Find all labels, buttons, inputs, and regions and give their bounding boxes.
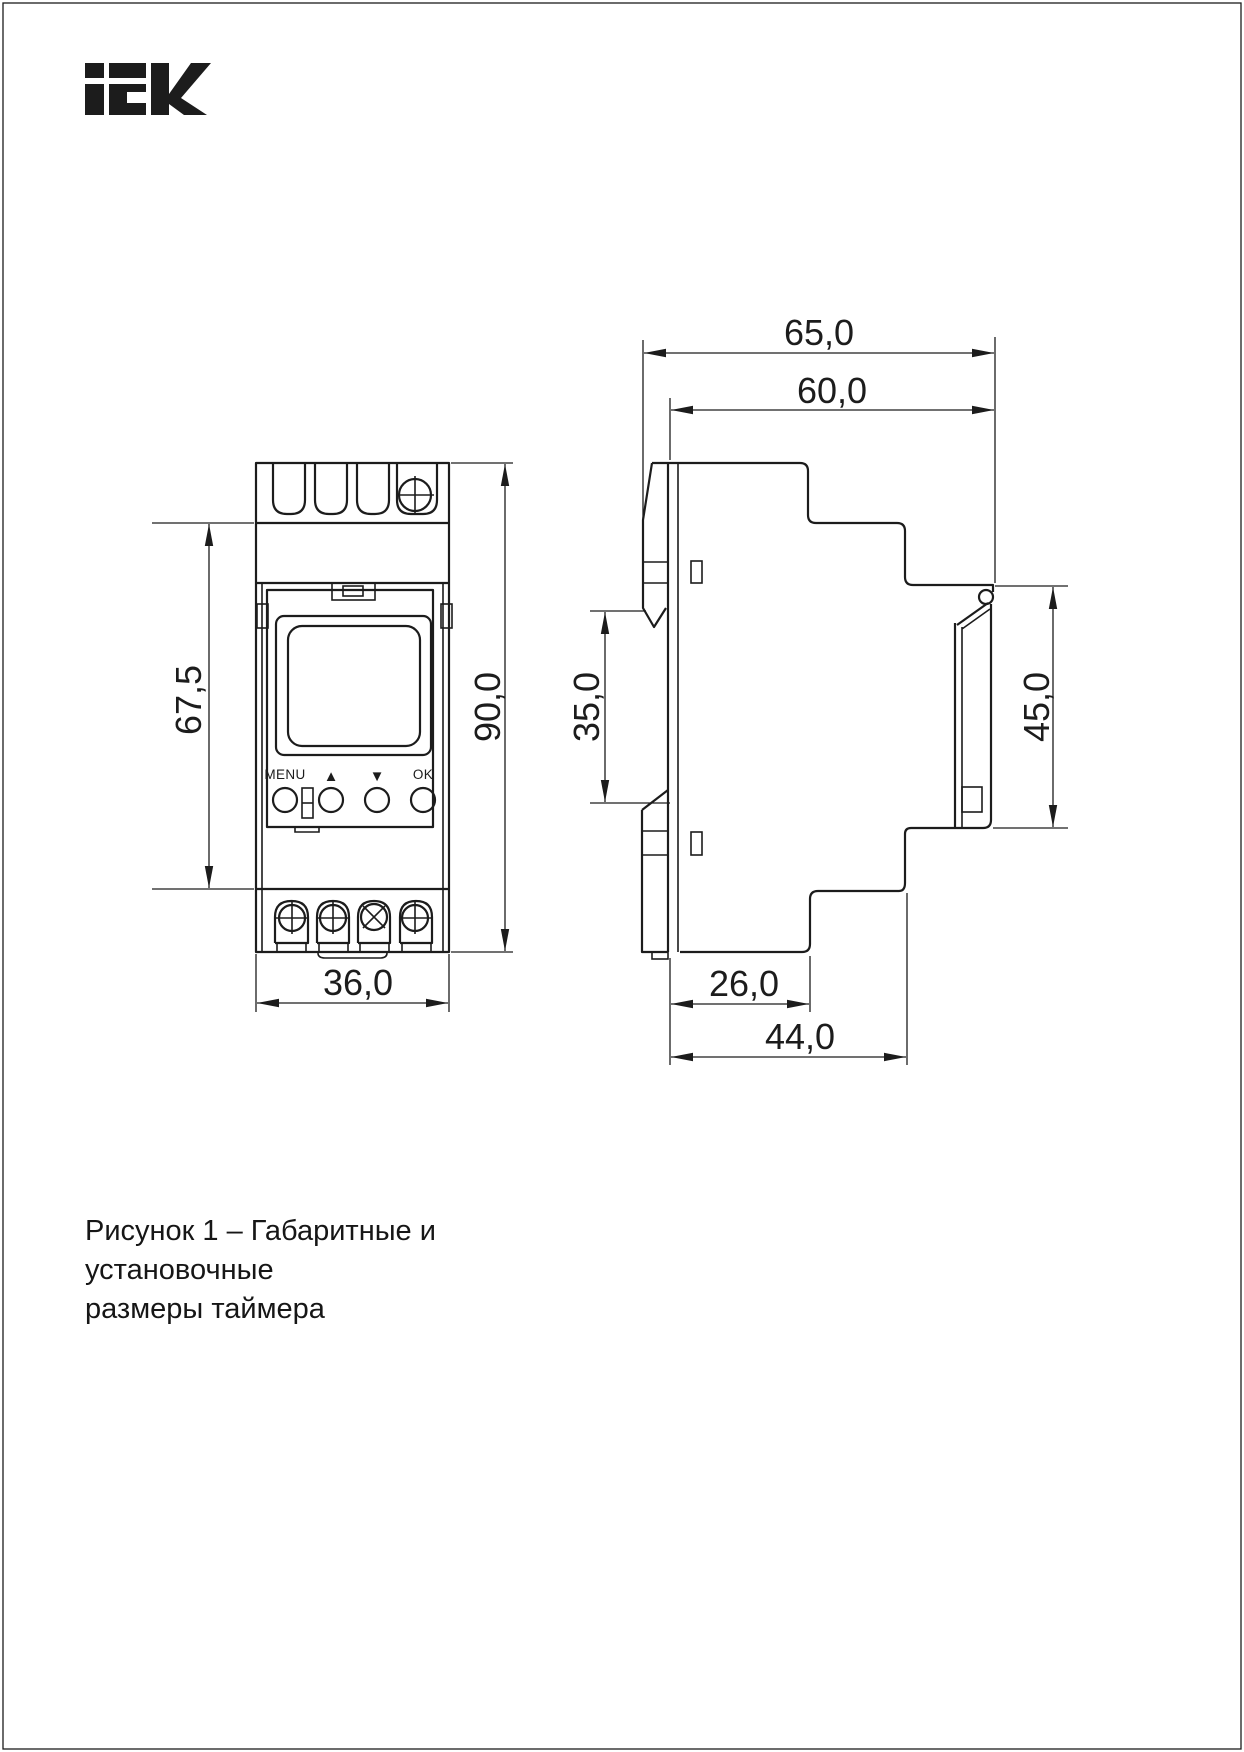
side-top-profile	[652, 463, 993, 592]
din-latch-lower	[642, 790, 668, 952]
dim-label-35-0: 35,0	[566, 672, 607, 742]
logo-e-notch	[127, 92, 146, 103]
ok-button	[411, 788, 435, 812]
din-hook-upper	[643, 463, 666, 627]
up-arrow-icon: ▲	[324, 768, 339, 785]
menu-button	[273, 788, 297, 812]
top-terminal-opening	[273, 463, 305, 514]
front-flap	[955, 603, 991, 828]
lcd-display-frame	[276, 616, 431, 755]
dimension-36-0: 36,0	[256, 954, 449, 1012]
dimension-65-0: 65,0	[643, 312, 995, 583]
terminal-clamp	[402, 943, 431, 952]
din-hook-lines	[643, 562, 668, 583]
figure-caption-line1: Рисунок 1 – Габаритные и установочные	[85, 1212, 585, 1290]
dim-label-26-0: 26,0	[709, 963, 779, 1004]
iek-logo	[85, 63, 211, 115]
menu-button-label: MENU	[264, 767, 305, 782]
dim-label-45-0: 45,0	[1016, 672, 1057, 742]
ok-button-label: OK	[413, 767, 433, 782]
rear-tab-upper	[691, 561, 702, 583]
dim-label-44-0: 44,0	[765, 1016, 835, 1057]
dim-label-65-0: 65,0	[784, 312, 854, 353]
side-bottom-profile	[680, 828, 955, 952]
logo-i-body	[85, 84, 104, 115]
flap-square-detail	[962, 787, 982, 812]
terminal-clamp	[319, 943, 348, 952]
side-view	[642, 463, 993, 959]
page-border	[3, 3, 1241, 1749]
terminal-clamp	[277, 943, 306, 952]
logo-e-top	[109, 63, 146, 78]
dim-label-36-0: 36,0	[323, 962, 393, 1003]
flap-hinge	[979, 590, 993, 604]
figure-caption: Рисунок 1 – Габаритные и установочные ра…	[85, 1212, 585, 1329]
rear-tab-lower	[691, 832, 702, 855]
dimension-35-0: 35,0	[566, 611, 670, 803]
lcd-display-screen	[288, 626, 420, 746]
down-arrow-icon: ▼	[370, 768, 385, 785]
din-latch-lines	[642, 831, 668, 855]
dimension-26-0: 26,0	[671, 956, 810, 1012]
up-button	[319, 788, 343, 812]
figure-caption-line2: размеры таймера	[85, 1290, 585, 1329]
dimension-45-0: 45,0	[993, 586, 1068, 828]
top-terminal-opening	[357, 463, 389, 514]
dimension-67-5: 67,5	[152, 523, 254, 889]
logo-k-arms	[169, 63, 211, 115]
top-screw-cross-icon	[396, 476, 434, 514]
down-button	[365, 788, 389, 812]
logo-k-stem	[151, 63, 169, 115]
technical-drawing: MENU ▲ ▼ OK 67,5	[0, 0, 1244, 1752]
datasheet-page: MENU ▲ ▼ OK 67,5	[0, 0, 1244, 1752]
screw-cross-icon	[317, 902, 349, 934]
dimension-60-0: 60,0	[670, 370, 994, 460]
terminal-clamp	[360, 943, 389, 952]
dimension-44-0: 44,0	[670, 893, 907, 1065]
dim-label-60-0: 60,0	[797, 370, 867, 411]
screw-x-cross-icon	[363, 906, 385, 928]
front-flap-inner	[962, 609, 990, 828]
front-view: MENU ▲ ▼ OK	[256, 463, 452, 958]
dim-label-90-0: 90,0	[467, 672, 508, 742]
top-terminal-opening	[315, 463, 347, 514]
screw-cross-icon	[276, 902, 308, 934]
dim-label-67-5: 67,5	[168, 665, 209, 735]
dimension-90-0: 90,0	[451, 463, 513, 952]
logo-i-dot	[85, 63, 104, 78]
